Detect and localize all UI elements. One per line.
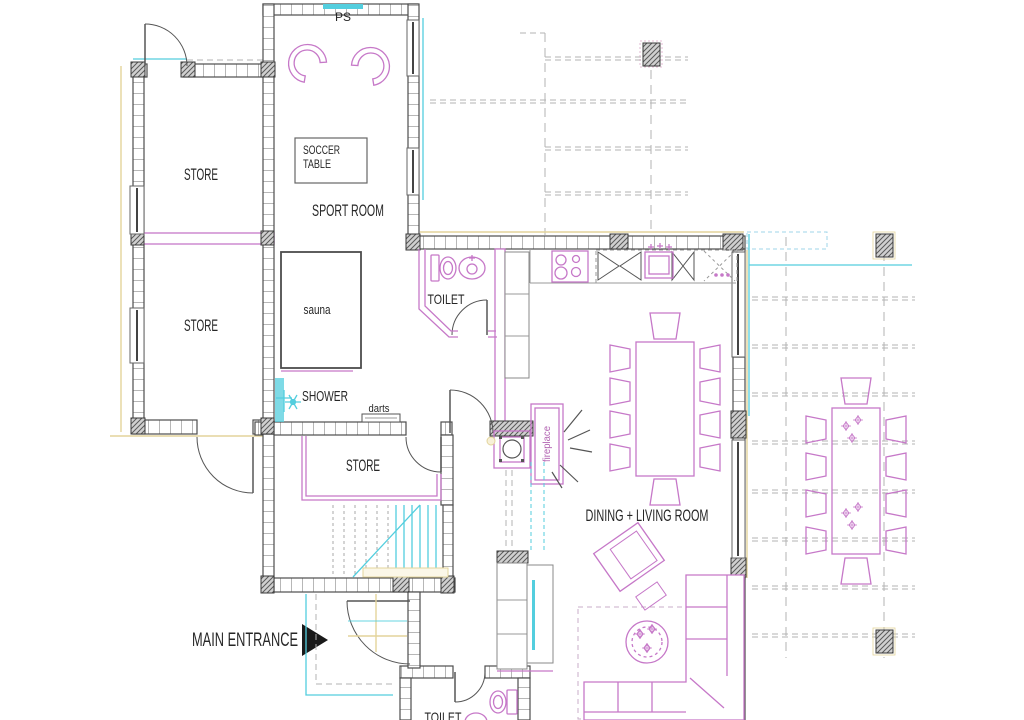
- coffee-table: [626, 621, 668, 663]
- chair: [700, 411, 720, 438]
- gaming-chairs: [281, 37, 398, 88]
- door: [197, 437, 253, 493]
- tv-screen: [532, 580, 535, 650]
- door: [455, 672, 485, 702]
- bean-chair: [349, 40, 398, 88]
- toilet-lower-room: [465, 690, 517, 720]
- kitchen: [505, 243, 737, 378]
- window: [130, 186, 144, 234]
- kitchen-counter-west: [505, 252, 529, 378]
- floor-plan: PS SOCCER TABLE SPORT ROOM STORE STORE S…: [0, 0, 1024, 720]
- chair: [806, 453, 826, 480]
- stairs-direction-line: [353, 505, 420, 577]
- column: [876, 234, 893, 257]
- ps-screen: [323, 4, 363, 9]
- chair: [841, 558, 871, 584]
- door-main-entrance: [347, 601, 410, 664]
- window: [407, 20, 419, 76]
- terrace-grid-right: [752, 237, 915, 658]
- walls: [133, 4, 745, 720]
- stairs-landing: [363, 568, 448, 577]
- chair: [610, 345, 630, 372]
- door: [145, 24, 187, 66]
- column: [643, 43, 660, 66]
- window: [732, 252, 745, 357]
- store-divider-wall: [133, 233, 274, 244]
- tv-cabinet: [497, 563, 553, 671]
- label-sauna: sauna: [304, 302, 332, 317]
- sink-fixture: [465, 713, 487, 720]
- fire-rays: [552, 410, 592, 488]
- stairs: [333, 505, 448, 577]
- label-dining-living: DINING + LIVING ROOM: [586, 506, 709, 525]
- darts-board: [362, 414, 400, 422]
- window: [130, 308, 144, 363]
- armchair: [594, 523, 667, 610]
- chair: [886, 453, 906, 480]
- label-shower: SHOWER: [302, 388, 348, 405]
- bean-chair: [281, 37, 330, 85]
- flue-guides: [506, 462, 544, 550]
- label-store-lower: STORE: [346, 456, 380, 475]
- chair: [610, 444, 630, 471]
- chair: [650, 479, 680, 505]
- door: [406, 437, 441, 472]
- sink-fixture: [459, 255, 485, 279]
- chair: [700, 444, 720, 471]
- chair: [650, 313, 680, 339]
- outdoor-table-set: [806, 378, 906, 584]
- label-toilet-lower: TOILET: [425, 709, 462, 720]
- label-store-top: STORE: [184, 165, 218, 184]
- chair: [806, 416, 826, 443]
- chair: [700, 378, 720, 405]
- chair: [886, 490, 906, 517]
- window: [732, 440, 745, 558]
- main-entrance-area: [302, 594, 407, 695]
- shower-wall: [275, 378, 284, 422]
- label-sport-room: SPORT ROOM: [312, 201, 384, 220]
- wall-vent: [487, 437, 495, 445]
- fireplace-equipment: [494, 431, 530, 468]
- label-fireplace: fireplace: [542, 426, 553, 462]
- stove: [552, 251, 588, 282]
- dining-table-set: [610, 313, 720, 505]
- toilet-fixture: [490, 690, 517, 714]
- label-soccer-2: TABLE: [303, 157, 331, 171]
- label-darts: darts: [369, 403, 390, 415]
- chair: [886, 416, 906, 443]
- door: [450, 390, 493, 433]
- living-room: [497, 523, 744, 720]
- label-store-mid: STORE: [184, 316, 218, 335]
- floor-plan-drawing: PS SOCCER TABLE SPORT ROOM STORE STORE S…: [0, 0, 1024, 720]
- toilet-fixture: [431, 255, 456, 281]
- label-toilet-upper: TOILET: [428, 291, 465, 307]
- label-main-entrance: MAIN ENTRANCE: [192, 630, 298, 651]
- label-ps: PS: [335, 10, 351, 24]
- column: [876, 630, 893, 653]
- chair: [610, 411, 630, 438]
- counter-dots: [714, 273, 730, 277]
- chair: [841, 378, 871, 404]
- window: [407, 148, 419, 195]
- chair: [610, 378, 630, 405]
- outdoor-table: [832, 408, 880, 554]
- chair: [700, 345, 720, 372]
- table-decor: [841, 415, 863, 530]
- chair: [806, 490, 826, 517]
- dining-table: [636, 342, 694, 476]
- label-soccer-1: SOCCER: [303, 143, 340, 157]
